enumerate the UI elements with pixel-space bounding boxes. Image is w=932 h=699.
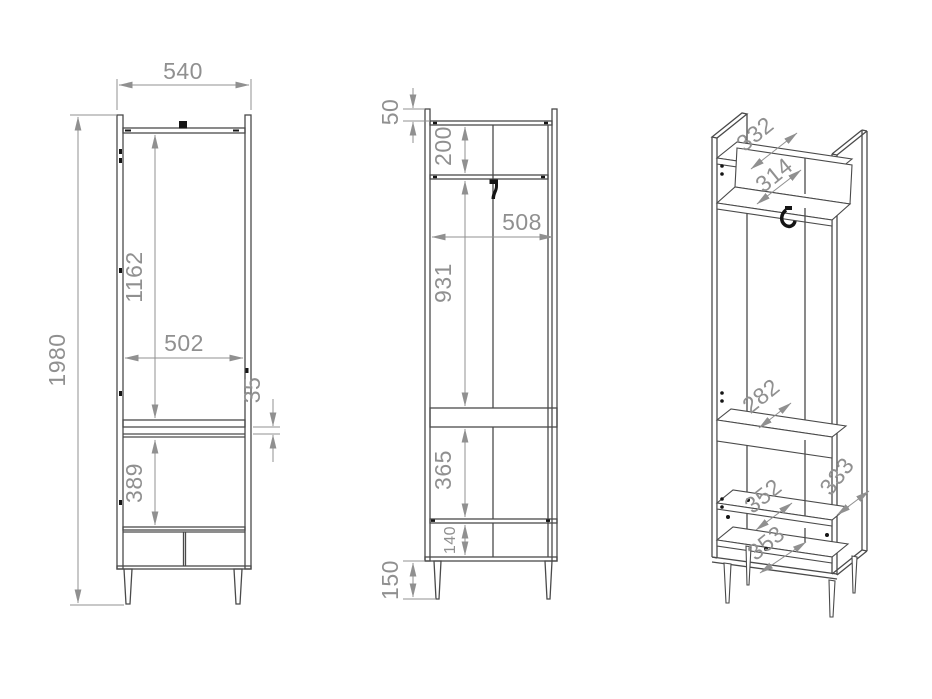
pin-hole: [720, 164, 724, 168]
dim-front-height: 1980: [44, 333, 70, 386]
wardrobe-technical-drawing: 540 1980 1162 502 35 389: [0, 0, 932, 699]
dim-side-legs: 150: [377, 560, 403, 600]
front-view: 540 1980 1162 502 35 389: [44, 58, 280, 605]
dim-side-drawer: 140: [442, 526, 459, 554]
hanger-bracket-icon: [490, 180, 499, 200]
front-left-leg: [124, 569, 132, 604]
dim-front-rail-gap: 35: [239, 377, 265, 404]
isometric-view: 332 314 282 352 353 333: [712, 111, 869, 617]
dim-side-top-shelf: 200: [430, 126, 456, 166]
side-view: 50 200 508 931 365 140 150: [377, 88, 557, 600]
dim-front-lower-height: 389: [121, 463, 147, 503]
front-right-leg: [234, 569, 242, 604]
side-back-leg: [545, 561, 552, 599]
front-hardware: [119, 121, 249, 505]
dim-side-hanging: 931: [430, 263, 456, 303]
dim-side-top-overhang: 50: [377, 99, 403, 126]
dim-front-inner-width: 502: [164, 330, 204, 356]
dim-front-upper-height: 1162: [121, 251, 147, 302]
iso-boards: [712, 142, 852, 579]
handle-knob: [179, 121, 187, 129]
dim-side-lower: 365: [430, 450, 456, 490]
technical-drawing-page: 540 1980 1162 502 35 389: [0, 0, 932, 699]
dim-iso-side-depth: 333: [814, 452, 859, 499]
shelf-pin-hole: [119, 149, 122, 154]
front-carcass: [117, 115, 251, 604]
side-front-leg: [434, 561, 441, 599]
dim-front-width: 540: [163, 58, 203, 84]
dim-side-depth: 508: [502, 209, 542, 235]
iso-leg: [724, 563, 731, 603]
